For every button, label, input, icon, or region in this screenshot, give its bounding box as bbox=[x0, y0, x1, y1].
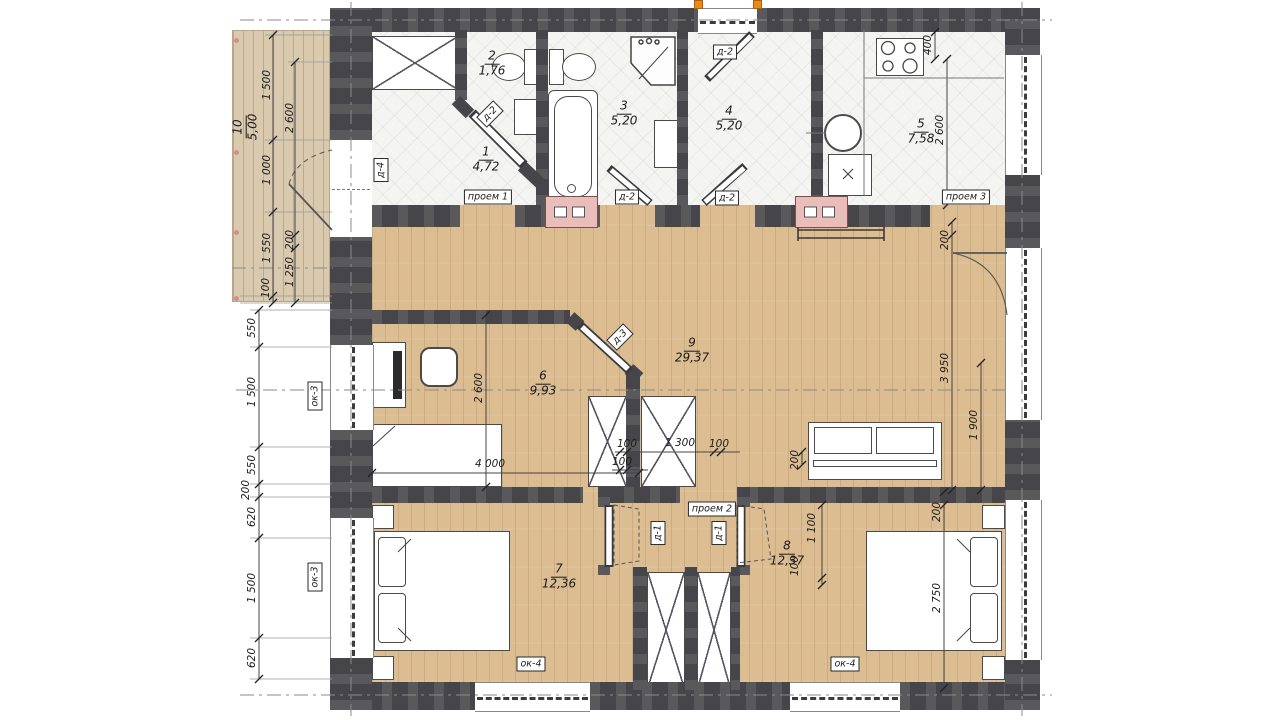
dim-label: 100 bbox=[709, 438, 729, 450]
window-tag: ок-3 bbox=[308, 381, 323, 410]
pillow bbox=[378, 593, 406, 643]
wall bbox=[1005, 420, 1040, 500]
dim-label: 400 bbox=[922, 35, 934, 55]
wall bbox=[330, 658, 372, 710]
room-label-7: 712,36 bbox=[542, 563, 576, 592]
pillow bbox=[378, 537, 406, 587]
sofa-cushion bbox=[876, 427, 934, 454]
wall bbox=[811, 30, 823, 205]
room-label-9: 929,37 bbox=[675, 337, 709, 366]
wardrobe bbox=[372, 36, 458, 90]
boiler bbox=[824, 114, 862, 152]
dim-label: 200 bbox=[284, 230, 296, 250]
dim-label: 200 bbox=[939, 230, 951, 250]
wall bbox=[1005, 8, 1040, 55]
dim-label: 1 550 bbox=[261, 233, 273, 263]
entry-marker bbox=[753, 0, 762, 9]
room-label-1: 14,72 bbox=[473, 146, 500, 175]
axis-marker bbox=[234, 38, 239, 43]
room-label-6: 69,93 bbox=[530, 370, 557, 399]
dim-label: 2 750 bbox=[931, 583, 943, 613]
water-heater bbox=[828, 154, 872, 196]
opening-tag: проем 1 bbox=[464, 190, 512, 205]
window-tag: ок-4 bbox=[516, 657, 545, 672]
dim-label: 100 bbox=[260, 278, 272, 298]
pillow bbox=[970, 537, 998, 587]
dim-label: 550 bbox=[246, 318, 258, 338]
toilet-bowl bbox=[562, 53, 596, 81]
nightstand bbox=[372, 505, 394, 529]
door-tag: д-1 bbox=[651, 521, 666, 545]
door-tag: д-2 bbox=[715, 191, 739, 206]
dim-label: 2 600 bbox=[934, 115, 946, 145]
vent-shaft bbox=[795, 196, 848, 228]
wall bbox=[748, 487, 1005, 503]
window bbox=[330, 345, 374, 430]
dim-label: 200 bbox=[789, 450, 801, 470]
window bbox=[475, 682, 590, 712]
wall bbox=[330, 237, 372, 345]
porch-door-opening bbox=[330, 140, 372, 237]
floor-plan: 14,72 21,76 35,20 45,20 57,58 69,93 712,… bbox=[0, 0, 1280, 720]
opening-tag: проем 2 bbox=[688, 502, 736, 517]
pillow bbox=[970, 593, 998, 643]
nightstand bbox=[982, 656, 1005, 680]
wall bbox=[330, 8, 698, 32]
wall bbox=[633, 567, 647, 690]
bathtub-inner bbox=[554, 96, 592, 197]
window bbox=[330, 518, 374, 658]
wall bbox=[330, 430, 372, 518]
window bbox=[790, 682, 900, 712]
wall bbox=[731, 567, 740, 690]
wall bbox=[455, 30, 467, 100]
room-label-4: 45,20 bbox=[716, 105, 743, 134]
nightstand bbox=[982, 505, 1005, 529]
dim-label: 2 600 bbox=[473, 373, 485, 403]
dim-label: 2 600 bbox=[284, 103, 296, 133]
wall bbox=[737, 487, 750, 507]
door-tag: д-4 bbox=[374, 158, 389, 182]
dim-label: 100 bbox=[612, 456, 632, 468]
window-tag: ок-4 bbox=[830, 657, 859, 672]
sofa-seat bbox=[813, 460, 937, 467]
door-tag: д-1 bbox=[712, 521, 727, 545]
dim-label: 100 bbox=[617, 438, 637, 450]
entry-marker bbox=[694, 0, 703, 9]
wall bbox=[655, 205, 700, 227]
chair bbox=[420, 347, 458, 387]
monitor bbox=[393, 351, 402, 399]
dim-label: 200 bbox=[931, 502, 943, 522]
opening-tag: проем 3 bbox=[942, 190, 990, 205]
window-tag: ок-3 bbox=[308, 562, 323, 591]
wall bbox=[598, 487, 680, 503]
porch-deck bbox=[232, 30, 330, 302]
window bbox=[1005, 55, 1042, 175]
dim-label: 3 950 bbox=[939, 353, 951, 383]
dim-label: 1 100 bbox=[806, 513, 818, 543]
axis-marker bbox=[234, 150, 239, 155]
wall bbox=[372, 487, 583, 503]
closet bbox=[647, 572, 685, 688]
dim-label: 620 bbox=[246, 648, 258, 668]
door-tag: д-2 bbox=[615, 190, 639, 205]
room-label-10: 105,00 bbox=[232, 114, 261, 141]
wall bbox=[598, 565, 610, 575]
wall bbox=[685, 567, 697, 690]
window bbox=[1005, 500, 1042, 660]
single-bed bbox=[372, 424, 502, 487]
dim-label: 1 500 bbox=[261, 70, 273, 100]
room-label-2: 21,76 bbox=[479, 50, 506, 79]
dim-label: 1 000 bbox=[261, 155, 273, 185]
wall bbox=[757, 8, 1040, 32]
axis-marker bbox=[234, 230, 239, 235]
dim-label: 100 bbox=[789, 556, 801, 576]
wall bbox=[1005, 660, 1040, 710]
wall bbox=[1005, 175, 1040, 248]
drain bbox=[567, 184, 576, 193]
dim-label: 1 300 bbox=[665, 437, 695, 449]
dim-label: 1 500 bbox=[246, 573, 258, 603]
vent-shaft bbox=[545, 196, 598, 228]
dim-label: 200 bbox=[240, 480, 252, 500]
wall bbox=[677, 30, 688, 205]
balcony-door-window bbox=[1005, 248, 1042, 420]
sofa-cushion bbox=[814, 427, 872, 454]
entrance-opening bbox=[698, 8, 757, 34]
wall bbox=[598, 487, 610, 507]
wall bbox=[372, 205, 460, 227]
stove bbox=[876, 38, 924, 76]
room-label-3: 35,20 bbox=[611, 100, 638, 129]
wall bbox=[536, 30, 548, 205]
door-tag: д-2 bbox=[713, 45, 737, 60]
nightstand bbox=[372, 656, 394, 680]
dim-label: 1 250 bbox=[284, 257, 296, 287]
wall bbox=[330, 8, 372, 140]
dim-label: 4 000 bbox=[475, 458, 505, 470]
axis-marker bbox=[234, 296, 239, 301]
dim-label: 550 bbox=[246, 455, 258, 475]
dim-label: 1 900 bbox=[968, 410, 980, 440]
room-label-5: 57,58 bbox=[908, 118, 935, 147]
dim-label: 620 bbox=[246, 507, 258, 527]
dim-label: 1 500 bbox=[246, 377, 258, 407]
closet bbox=[697, 572, 731, 688]
wall bbox=[372, 310, 570, 324]
